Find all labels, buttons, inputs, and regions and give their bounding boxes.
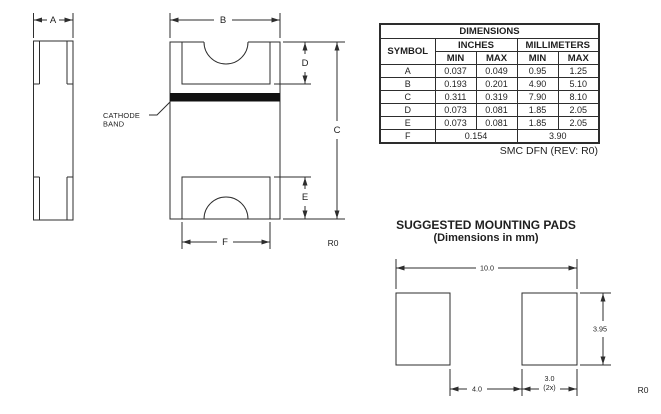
right-pad: [522, 293, 577, 365]
dim-c-label: C: [334, 125, 341, 136]
value-cell: 0.049: [476, 65, 517, 78]
front-view-bottom-pad: [182, 177, 270, 219]
inches-header: INCHES: [435, 39, 517, 52]
symbol-header: SYMBOL: [380, 39, 435, 65]
dim-e-label: E: [302, 192, 308, 203]
dim-f-label: F: [222, 237, 228, 248]
value-cell: 0.073: [435, 104, 476, 117]
value-cell: 1.25: [558, 65, 599, 78]
mounting-pads-rev-label: R0: [638, 385, 649, 395]
value-cell: 0.081: [476, 117, 517, 130]
pad-width-value: 3.0: [545, 374, 555, 383]
side-view-top-terminal: [34, 41, 74, 84]
value-cell: 5.10: [558, 78, 599, 91]
cathode-band-label-line2: BAND: [103, 120, 124, 129]
millimeters-header: MILLIMETERS: [517, 39, 599, 52]
side-view: [34, 13, 74, 220]
value-cell: 1.85: [517, 117, 558, 130]
value-cell: 0.081: [476, 104, 517, 117]
value-cell: 2.05: [558, 104, 599, 117]
inches-min-header: MIN: [435, 52, 476, 65]
value-cell: 3.90: [517, 130, 599, 144]
cathode-band-leader-line: [149, 102, 170, 115]
dim-d-label: D: [302, 58, 309, 69]
front-view-body: [170, 42, 280, 219]
top-notch-arc: [204, 42, 248, 64]
symbol-cell: F: [380, 130, 435, 144]
symbol-cell: D: [380, 104, 435, 117]
table-row-b: B 0.193 0.201 4.90 5.10: [380, 78, 599, 91]
value-cell: 0.95: [517, 65, 558, 78]
mounting-pads-title: SUGGESTED MOUNTING PADS: [366, 218, 606, 232]
cathode-band: [170, 93, 280, 102]
symbol-cell: A: [380, 65, 435, 78]
front-view: [149, 13, 345, 249]
table-row-c: C 0.311 0.319 7.90 8.10: [380, 91, 599, 104]
value-cell: 0.201: [476, 78, 517, 91]
left-pad: [396, 293, 450, 365]
inches-max-header: MAX: [476, 52, 517, 65]
pad-width-qty: (2x): [543, 383, 555, 392]
dimensions-table: DIMENSIONS SYMBOL INCHES MILLIMETERS MIN…: [379, 23, 600, 144]
dim-a-label: A: [50, 15, 57, 26]
value-cell: 7.90: [517, 91, 558, 104]
value-cell: 0.311: [435, 91, 476, 104]
mm-min-header: MIN: [517, 52, 558, 65]
symbol-cell: E: [380, 117, 435, 130]
table-footnote: SMC DFN (REV: R0): [379, 145, 598, 157]
front-view-top-pad: [182, 42, 270, 84]
value-cell: 4.90: [517, 78, 558, 91]
value-cell: 0.154: [435, 130, 517, 144]
mm-max-header: MAX: [558, 52, 599, 65]
value-cell: 1.85: [517, 104, 558, 117]
bottom-dome-arc: [204, 197, 248, 219]
mounting-pads-drawing: 10.0 3.95 4.0 3.0 (2x) R0: [385, 255, 661, 414]
value-cell: 0.037: [435, 65, 476, 78]
table-row-a: A 0.037 0.049 0.95 1.25: [380, 65, 599, 78]
value-cell: 2.05: [558, 117, 599, 130]
front-view-rev-label: R0: [328, 238, 339, 248]
table-title: DIMENSIONS: [380, 24, 599, 39]
value-cell: 0.193: [435, 78, 476, 91]
datasheet-package-drawing: A B D C E F CATHODE BAND R0 DIMENSIONS S…: [0, 0, 661, 414]
overall-width-value: 10.0: [480, 264, 494, 273]
value-cell: 0.073: [435, 117, 476, 130]
value-cell: 0.319: [476, 91, 517, 104]
mounting-pads-subtitle: (Dimensions in mm): [366, 232, 606, 244]
table-row-e: E 0.073 0.081 1.85 2.05: [380, 117, 599, 130]
pad-height-value: 3.95: [593, 325, 607, 334]
symbol-cell: B: [380, 78, 435, 91]
symbol-cell: C: [380, 91, 435, 104]
value-cell: 8.10: [558, 91, 599, 104]
dim-b-label: B: [220, 15, 226, 26]
package-views-drawing: A B D C E F CATHODE BAND R0: [0, 0, 370, 260]
table-row-d: D 0.073 0.081 1.85 2.05: [380, 104, 599, 117]
pad-gap-value: 4.0: [472, 385, 482, 394]
side-view-bottom-terminal: [34, 177, 74, 220]
table-row-f: F 0.154 3.90: [380, 130, 599, 144]
